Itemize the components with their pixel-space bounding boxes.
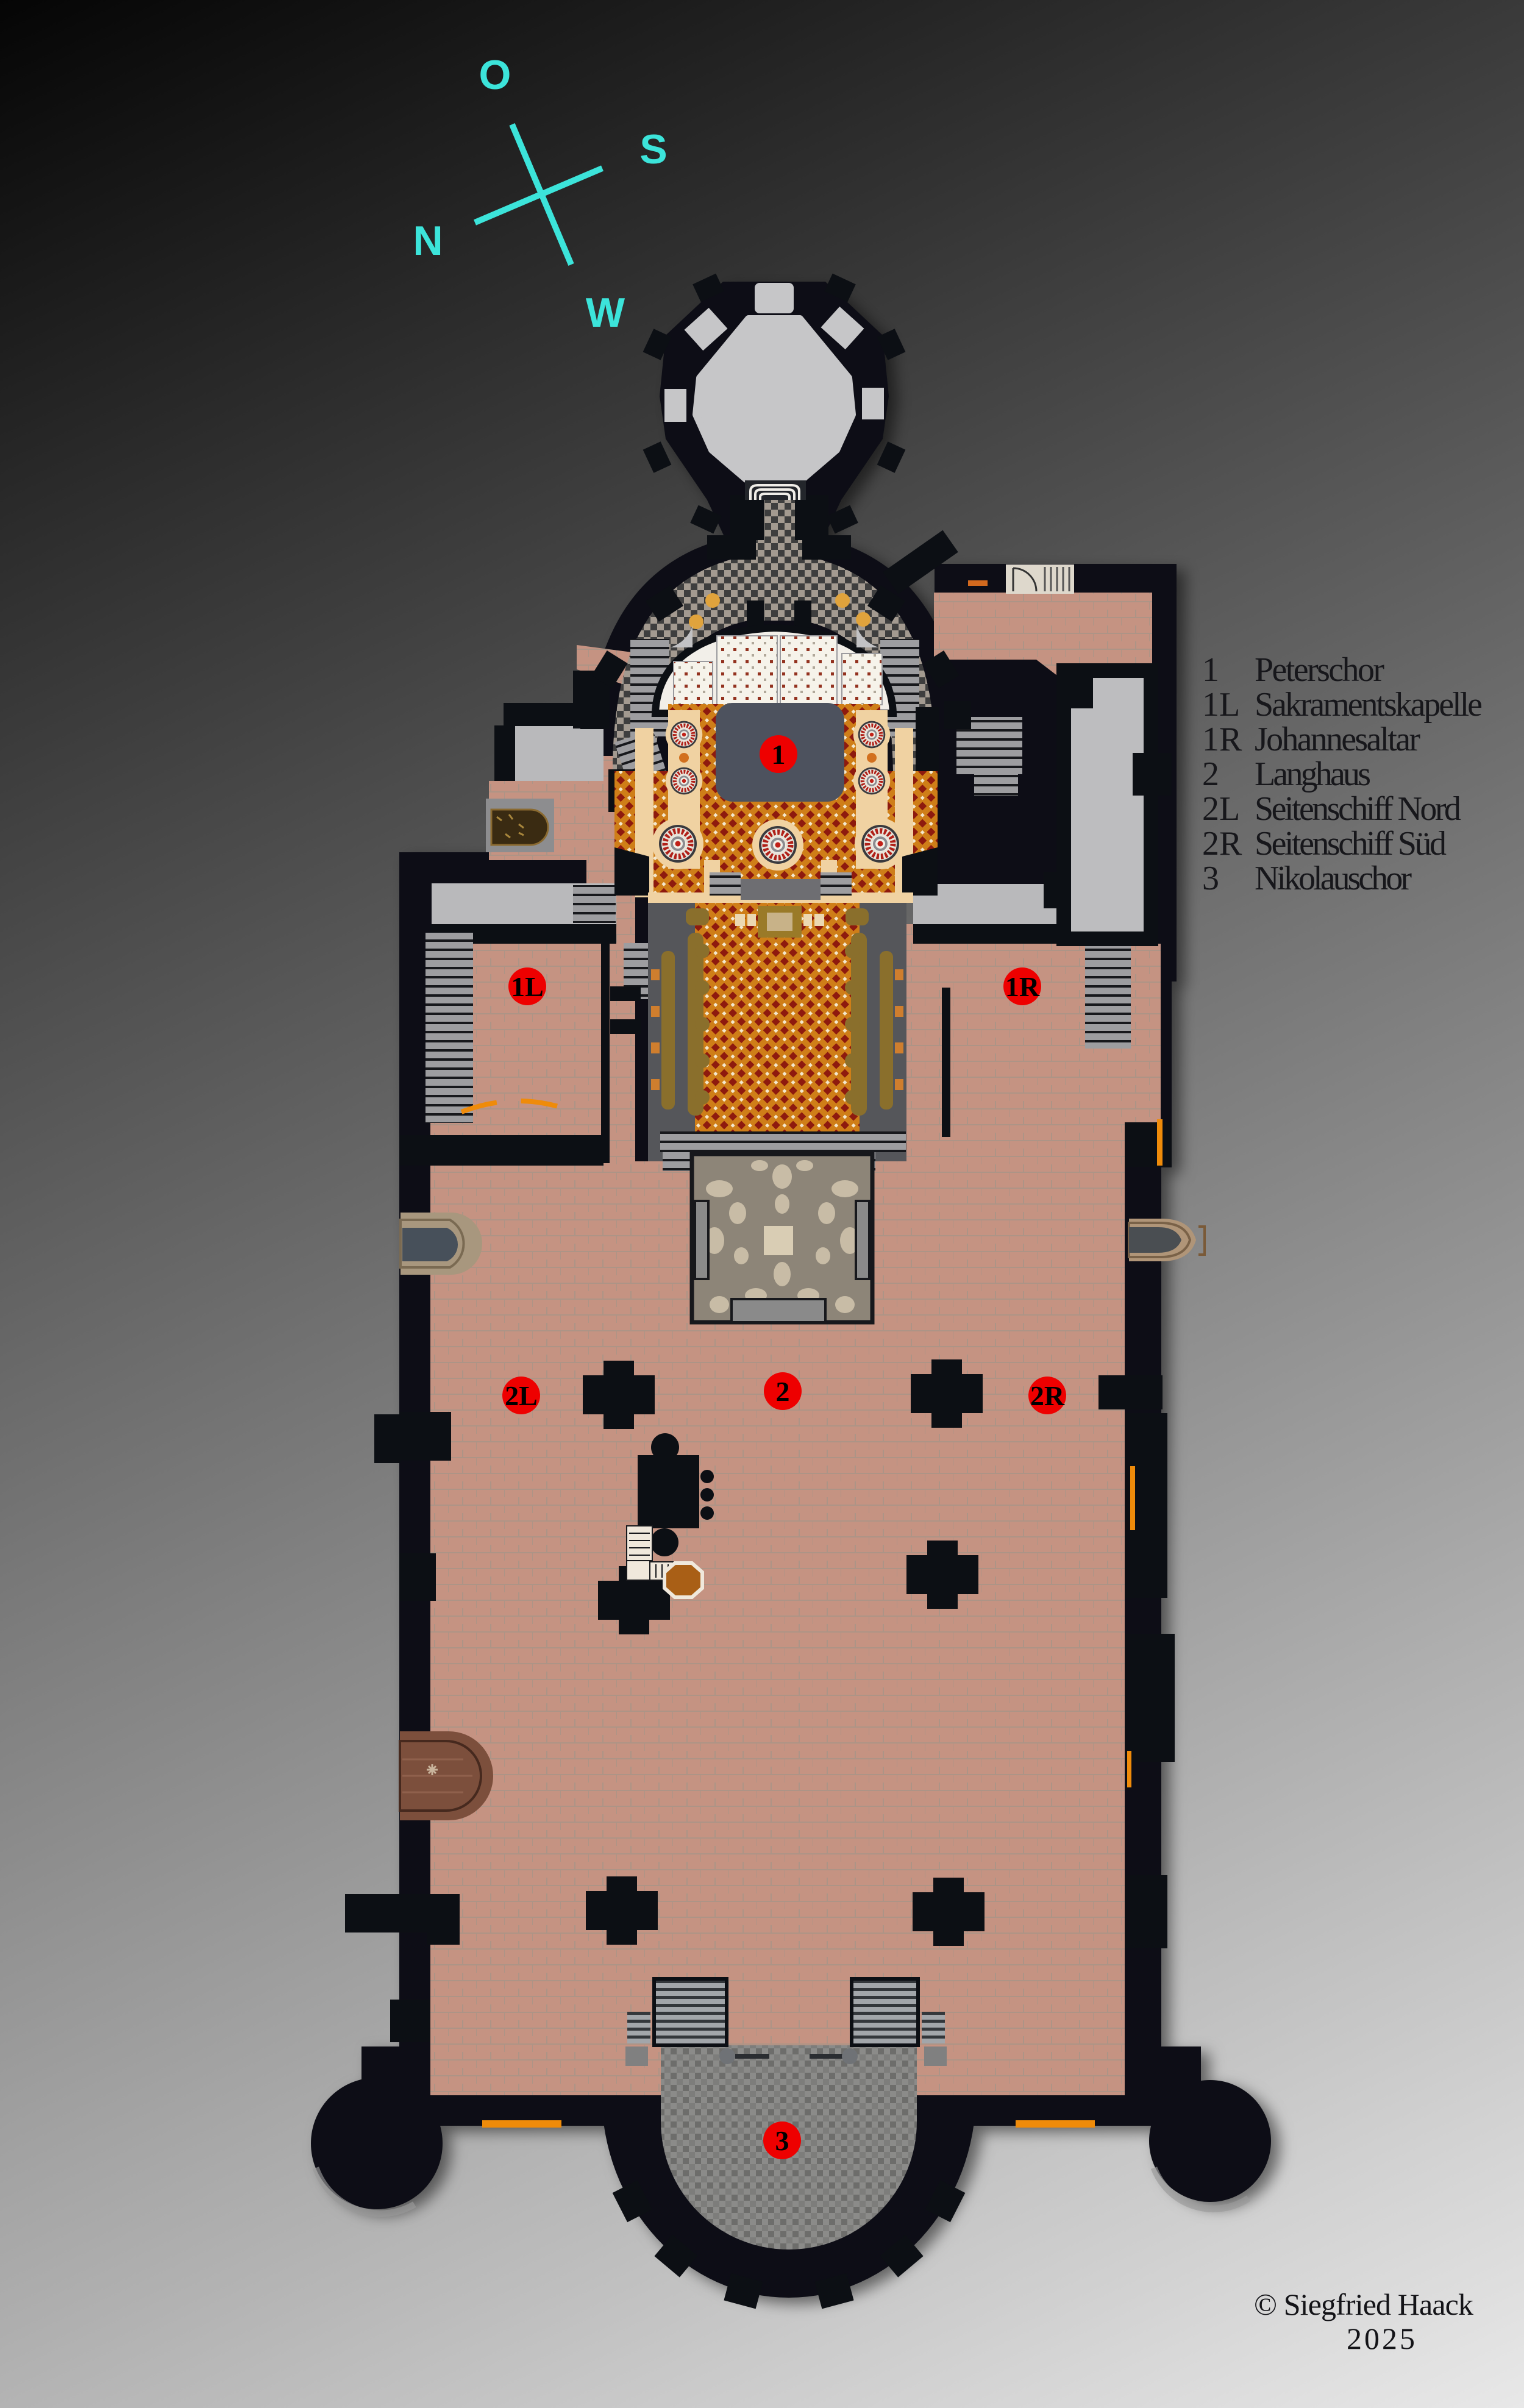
svg-text:Nikolauschor: Nikolauschor — [1255, 860, 1412, 897]
svg-text:1L: 1L — [511, 971, 544, 1002]
svg-text:2L: 2L — [1202, 790, 1240, 828]
svg-text:Peterschor: Peterschor — [1255, 651, 1384, 689]
svg-text:1L: 1L — [1202, 686, 1240, 724]
svg-text:1R: 1R — [1005, 971, 1040, 1002]
svg-text:N: N — [413, 218, 443, 264]
svg-text:Johannesaltar: Johannesaltar — [1255, 721, 1420, 758]
svg-text:© Siegfried Haack: © Siegfried Haack — [1254, 2287, 1473, 2321]
svg-text:2: 2 — [776, 1376, 790, 1407]
svg-text:Seitenschiff Nord: Seitenschiff Nord — [1255, 790, 1461, 828]
svg-text:2R: 2R — [1030, 1380, 1065, 1411]
svg-text:Seitenschiff Süd: Seitenschiff Süd — [1255, 825, 1447, 863]
svg-text:2: 2 — [1202, 755, 1219, 793]
svg-text:Sakramentskapelle: Sakramentskapelle — [1255, 686, 1483, 724]
svg-text:Langhaus: Langhaus — [1255, 755, 1371, 793]
svg-text:1: 1 — [772, 739, 786, 770]
svg-text:1: 1 — [1202, 651, 1219, 689]
svg-text:2R: 2R — [1202, 825, 1242, 863]
svg-text:1R: 1R — [1202, 721, 1242, 758]
svg-text:3: 3 — [775, 2125, 789, 2156]
svg-text:3: 3 — [1202, 860, 1219, 897]
svg-text:O: O — [479, 52, 511, 98]
svg-text:W: W — [586, 290, 625, 336]
svg-text:2L: 2L — [505, 1380, 538, 1411]
svg-text:S: S — [639, 126, 667, 173]
